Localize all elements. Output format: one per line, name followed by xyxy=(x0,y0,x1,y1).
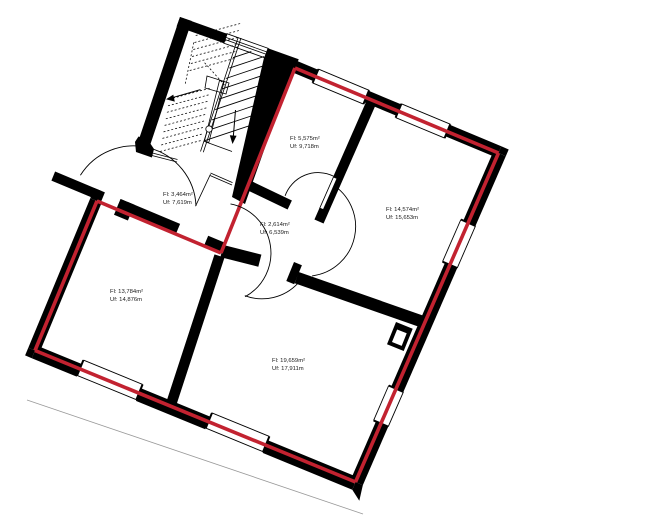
svg-text:Fl: 5,575m²: Fl: 5,575m² xyxy=(290,136,320,142)
svg-text:Uf: 14,876m: Uf: 14,876m xyxy=(110,297,142,303)
svg-text:Uf: 15,653m: Uf: 15,653m xyxy=(386,215,418,221)
svg-text:Uf: 17,911m: Uf: 17,911m xyxy=(272,366,304,372)
svg-text:Uf: 9,718m: Uf: 9,718m xyxy=(290,144,319,150)
svg-text:Fl: 3,464m²: Fl: 3,464m² xyxy=(163,192,193,198)
svg-text:Uf: 6,539m: Uf: 6,539m xyxy=(260,230,289,236)
svg-text:Uf: 7,619m: Uf: 7,619m xyxy=(163,200,192,206)
svg-text:Fl: 2,614m²: Fl: 2,614m² xyxy=(260,222,290,228)
svg-text:Fl: 19,659m²: Fl: 19,659m² xyxy=(272,358,305,364)
svg-text:Fl: 14,574m²: Fl: 14,574m² xyxy=(386,207,419,213)
svg-text:Fl: 13,784m²: Fl: 13,784m² xyxy=(110,289,143,295)
